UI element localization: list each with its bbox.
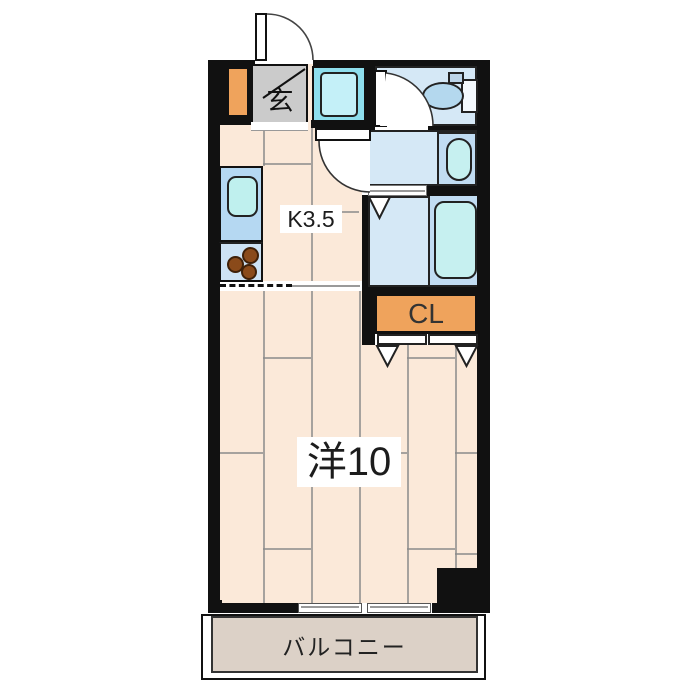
floor-plan: 玄 CL バルコニー K3.5 洋10 [0,0,700,700]
toilet-door-arc-icon [380,73,433,126]
closet-folding-door-mark [377,346,398,366]
closet-folding-door-mark [456,346,477,366]
balcony-label: バルコニー [211,628,478,662]
balcony-window-right-track [370,606,428,608]
balcony-window-left [298,603,362,613]
plan-annotations [0,0,700,700]
genkan-step-line [263,69,305,98]
kitchen-door-arc-icon [319,141,370,192]
bathroom-folding-door-mark [369,197,390,218]
kitchen-label: K3.5 [280,205,342,233]
balcony-window-left-track [301,606,359,608]
main-room-label: 洋10 [297,437,401,487]
balcony-window-right [367,603,431,613]
